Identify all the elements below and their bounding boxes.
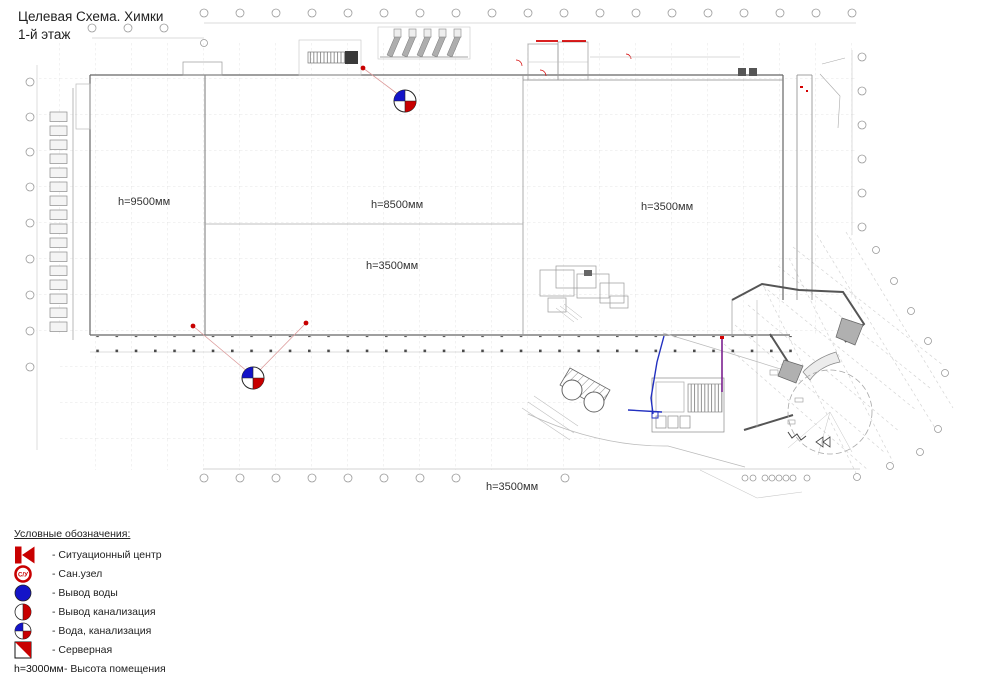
water-outlet-icon [14,584,48,602]
legend-item-water-sewage: - Вода, канализация [14,621,166,640]
legend-item-sewage-outlet: - Вывод канализация [14,602,166,621]
height-label: h=8500мм [371,199,423,211]
server-room-icon [14,641,48,659]
legend-item-situation-center: - Ситуационный центр [14,545,166,564]
legend-item-label: - Вывод воды [52,587,118,599]
red-outlet-dot-icon [304,321,309,326]
legend-item-room-height: h=3000мм - Высота помещения [14,659,166,678]
situation-center-icon [14,546,48,564]
legend-item-label: - Вывод канализация [52,606,156,618]
sanitary-rooms [652,378,724,432]
legend-item-label: - Вода, канализация [52,625,151,637]
floor-plan-page: Целевая Схема. Химки 1-й этаж [0,0,1000,682]
san-uzel-icon: С/У [14,565,48,583]
legend-item-label: - Сан.узел [52,568,102,580]
height-sample-text: h=3000мм [14,663,64,675]
legend-item-server-room: - Серверная [14,640,166,659]
legend-item-label: - Высота помещения [64,663,166,675]
svg-text:С/У: С/У [18,571,28,578]
height-label: h=3500мм [486,481,538,493]
water-sewage-marker-icon [394,90,416,112]
height-label: h=3500мм [641,201,693,213]
legend-header: Условные обозначения: [14,528,166,540]
height-label: h=9500мм [118,196,170,208]
legend-item-san-uzel: С/У - Сан.узел [14,564,166,583]
legend-item-water-outlet: - Вывод воды [14,583,166,602]
column-dots [94,336,792,355]
red-outlet-dot-icon [191,324,196,329]
legend-item-label: - Серверная [52,644,112,656]
grid-lines [36,23,860,470]
water-sewage-icon [14,622,48,640]
height-label: h=3500мм [366,260,418,272]
legend: Условные обозначения: - Ситуационный цен… [14,528,166,678]
sewage-outlet-icon [14,603,48,621]
legend-item-label: - Ситуационный центр [52,549,162,561]
red-outlet-dot-icon [361,66,366,71]
water-sewage-marker-icon [242,367,264,389]
